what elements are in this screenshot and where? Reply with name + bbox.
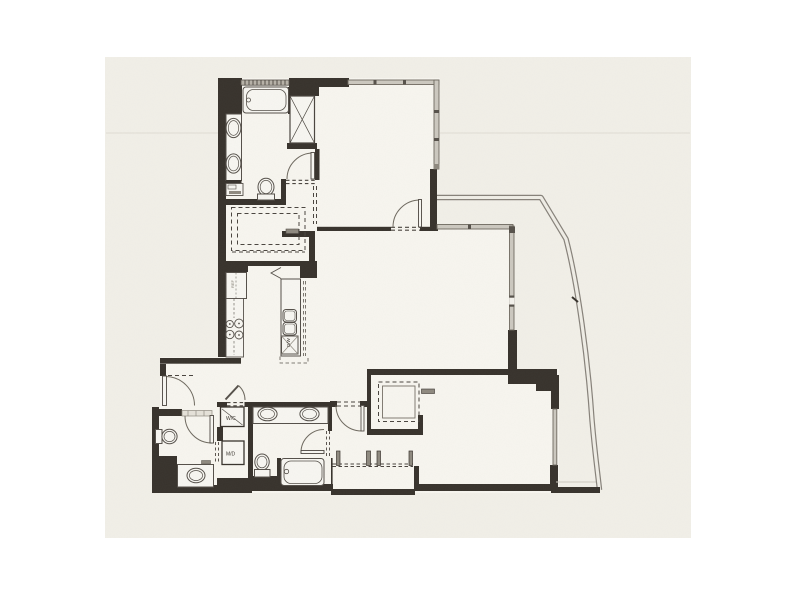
svg-text:D/W: D/W [286,338,291,348]
svg-text:M/D: M/D [226,452,236,458]
svg-text:REF: REF [230,279,235,288]
svg-text:W/C: W/C [226,416,236,422]
